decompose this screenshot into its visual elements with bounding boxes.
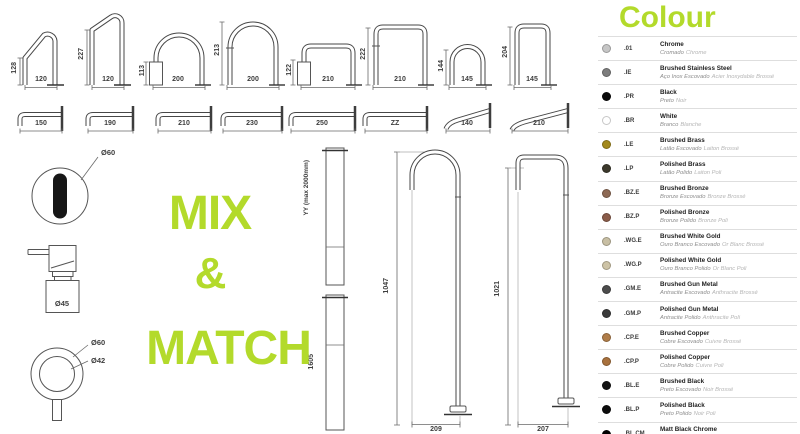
colour-name-fr: Cuivre Poli <box>696 363 724 369</box>
colour-row-polished-bronze: .BZ.P Polished Bronze Bronze PolidoBronz… <box>598 205 797 229</box>
dim-height-spout1: 128 <box>11 62 18 74</box>
colour-name-pt: Ouro Branco Polido <box>660 266 711 272</box>
colour-row-polished-brass: .LP Polished Brass Latão PolidoLaiton Po… <box>598 156 797 180</box>
dim-dispenser-diameter: Ø45 <box>55 300 69 308</box>
dim-floor-spout1-height: 1047 <box>383 278 390 294</box>
colour-swatch <box>602 68 611 77</box>
colour-code: .BZ.P <box>624 214 639 220</box>
dim-handle-outer-diameter: Ø60 <box>91 339 105 347</box>
colour-name-fr: Noir <box>676 98 687 104</box>
colour-name: Polished White Gold <box>660 257 721 264</box>
colour-swatch <box>602 381 611 390</box>
colour-swatch <box>602 189 611 198</box>
colour-code: .CP.E <box>624 335 639 341</box>
catalog-page: 128 120 227 120 113 200 213 200 122 210 … <box>0 0 800 434</box>
colour-legend-title: Colour <box>619 1 716 35</box>
colour-name: Matt Black Chrome <box>660 426 717 433</box>
colour-swatch <box>602 44 611 53</box>
colour-swatch <box>602 405 611 414</box>
floor-spout-angled-drawing <box>505 157 580 428</box>
colour-code: .IE <box>624 70 631 76</box>
colour-row-polished-gun-metal: .GM.P Polished Gun Metal Antracite Polid… <box>598 301 797 325</box>
colour-name: White <box>660 113 677 120</box>
dim-wall-spout4: 230 <box>246 120 258 127</box>
colour-name: Brushed Brass <box>660 137 705 144</box>
colour-code: .WG.E <box>624 238 642 244</box>
colour-row-brushed-white-gold: .WG.E Brushed White Gold Ouro Branco Esc… <box>598 229 797 253</box>
colour-row-polished-black: .BL.P Polished Black Preto PolidoNoir Po… <box>598 397 797 421</box>
dim-height-spout2: 227 <box>78 48 85 60</box>
colour-name: Brushed Black <box>660 378 704 385</box>
colour-legend: .01 Chrome CromadoChrome .IE Brushed Sta… <box>598 36 797 434</box>
dim-sensor-diameter: Ø60 <box>101 149 115 157</box>
colour-row-polished-copper: .CP.P Polished Copper Cobre PolidoCuivre… <box>598 349 797 373</box>
top-spout-square-small-drawing <box>291 46 363 90</box>
colour-name-pt: Preto <box>660 98 674 104</box>
colour-name-fr: Or Blanc Poli <box>713 266 747 272</box>
colour-code: .01 <box>624 46 632 52</box>
colour-name-fr: Laiton Brossé <box>704 146 739 152</box>
colour-swatch <box>602 261 611 270</box>
dim-floor-spout2-height: 1021 <box>494 281 501 297</box>
colour-code: .GM.E <box>624 286 641 292</box>
colour-row-chrome: .01 Chrome CromadoChrome <box>598 36 797 60</box>
colour-name-pt: Preto Polido <box>660 411 692 417</box>
colour-name-fr: Bronze Brossé <box>707 194 745 200</box>
colour-name: Polished Black <box>660 402 705 409</box>
dim-width-spout3: 200 <box>172 76 184 83</box>
mix-match-line1: MIX <box>150 190 270 238</box>
dim-wall-spout3: 210 <box>178 120 190 127</box>
colour-row-brushed-gun-metal: .GM.E Brushed Gun Metal Antracite Escova… <box>598 277 797 301</box>
colour-name-pt: Branco <box>660 122 678 128</box>
soap-dispenser-drawing <box>28 246 79 313</box>
dim-height-spout8: 204 <box>502 46 509 58</box>
colour-name-fr: Chrome <box>686 50 707 56</box>
colour-swatch <box>602 430 611 434</box>
dim-height-spout7: 144 <box>438 60 445 72</box>
colour-name-pt: Latão Polido <box>660 170 692 176</box>
sensor-spout-top-view <box>32 157 98 224</box>
wall-spout-angled-140-drawing <box>446 103 490 134</box>
colour-name-fr: Laiton Poli <box>694 170 721 176</box>
colour-code: .BL.P <box>624 407 639 413</box>
dim-wall-spout8: 210 <box>533 120 545 127</box>
colour-name-pt: Preto Escovado <box>660 387 701 393</box>
colour-name: Polished Bronze <box>660 209 709 216</box>
colour-row-black: .PR Black PretoNoir <box>598 84 797 108</box>
colour-name-pt: Antracite Escovado <box>660 290 710 296</box>
colour-row-brushed-brass: .LE Brushed Brass Latão EscovadoLaiton B… <box>598 132 797 156</box>
dim-wall-spout6: ZZ <box>391 120 400 127</box>
colour-name: Brushed White Gold <box>660 233 721 240</box>
colour-row-brushed-stainless: .IE Brushed Stainless Steel Aço Inox Esc… <box>598 60 797 84</box>
dim-floor-spout2-base: 207 <box>537 426 549 433</box>
colour-code: .BZ.E <box>624 190 639 196</box>
dim-height-spout3: 113 <box>139 65 146 76</box>
dim-wall-spout1: 150 <box>35 120 47 127</box>
colour-swatch <box>602 213 611 222</box>
colour-name-pt: Cromado <box>660 50 684 56</box>
colour-name-fr: Noir Brossé <box>703 387 733 393</box>
colour-name-fr: Acier Inoxydable Brossé <box>712 74 775 80</box>
colour-code: .LP <box>624 166 633 172</box>
colour-row-brushed-bronze: .BZ.E Brushed Bronze Bronze EscovadoBron… <box>598 181 797 205</box>
dim-height-spout4: 213 <box>214 44 221 56</box>
dim-width-spout1: 120 <box>35 76 47 83</box>
colour-swatch <box>602 164 611 173</box>
colour-code: .WG.P <box>624 262 642 268</box>
colour-row-matt-black-chrome: .BL.CM Matt Black Chrome Preto Cromado M… <box>598 422 797 434</box>
dim-floor-spout1-base: 209 <box>430 426 442 433</box>
colour-name-pt: Aço Inox Escovado <box>660 74 710 80</box>
colour-code: .BL.E <box>624 383 639 389</box>
colour-name-pt: Cobre Polido <box>660 363 694 369</box>
dim-width-spout4: 200 <box>247 76 259 83</box>
dim-wall-spout2: 190 <box>104 120 116 127</box>
colour-name-fr: Anthracite Brossé <box>712 290 758 296</box>
dim-handle-inner-diameter: Ø42 <box>91 357 105 365</box>
colour-name: Polished Gun Metal <box>660 306 718 313</box>
dim-riser-adjustable: YY (max 2000mm) <box>304 160 311 216</box>
handle-top-view <box>31 345 88 421</box>
colour-name-fr: Or Blanc Brossé <box>722 242 764 248</box>
colour-code: .PR <box>624 94 634 100</box>
colour-name-pt: Latão Escovado <box>660 146 702 152</box>
colour-name-pt: Cobre Escovado <box>660 339 703 345</box>
colour-name-fr: Noir Poli <box>694 411 716 417</box>
colour-row-brushed-copper: .CP.E Brushed Copper Cobre EscovadoCuivr… <box>598 325 797 349</box>
floor-spout-arched-drawing <box>394 152 472 428</box>
colour-swatch <box>602 357 611 366</box>
colour-row-polished-white-gold: .WG.P Polished White Gold Ouro Branco Po… <box>598 253 797 277</box>
colour-swatch <box>602 309 611 318</box>
colour-name-pt: Bronze Polido <box>660 218 696 224</box>
colour-name-pt: Bronze Escovado <box>660 194 705 200</box>
dim-width-spout7: 145 <box>461 76 473 83</box>
colour-name: Brushed Bronze <box>660 185 709 192</box>
colour-name: Polished Copper <box>660 354 710 361</box>
colour-name: Polished Brass <box>660 161 706 168</box>
colour-name-fr: Blanche <box>680 122 701 128</box>
dim-height-spout6: 222 <box>360 48 367 60</box>
riser-fixed-drawing <box>322 295 348 430</box>
colour-name: Chrome <box>660 41 684 48</box>
colour-name: Black <box>660 89 677 96</box>
colour-name-fr: Cuivre Brossé <box>705 339 741 345</box>
dim-height-spout5: 122 <box>286 64 293 76</box>
colour-name-fr: Bronze Poli <box>698 218 728 224</box>
top-spout-round-compact-drawing <box>444 47 493 91</box>
colour-name: Brushed Stainless Steel <box>660 65 732 72</box>
colour-row-white: .BR White BrancoBlanche <box>598 108 797 132</box>
wall-spout-angled-210-drawing <box>512 103 568 134</box>
colour-swatch <box>602 285 611 294</box>
colour-name-fr: Anthracite Poli <box>703 315 740 321</box>
mix-match-line2: & <box>150 252 270 296</box>
dim-width-spout5: 210 <box>322 76 334 83</box>
dim-wall-spout7: 140 <box>461 120 473 127</box>
colour-code: .GM.P <box>624 311 641 317</box>
colour-name-pt: Ouro Branco Escovado <box>660 242 720 248</box>
dim-wall-spout5: 250 <box>316 120 328 127</box>
colour-swatch <box>602 92 611 101</box>
riser-adjustable-drawing <box>322 148 348 285</box>
colour-code: .CP.P <box>624 359 639 365</box>
colour-row-brushed-black: .BL.E Brushed Black Preto EscovadoNoir B… <box>598 373 797 397</box>
colour-name: Brushed Copper <box>660 330 709 337</box>
mix-match-line3: MATCH <box>136 325 321 373</box>
colour-name-pt: Antracite Polido <box>660 315 701 321</box>
colour-swatch <box>602 116 611 125</box>
colour-code: .LE <box>624 142 633 148</box>
colour-swatch <box>602 333 611 342</box>
colour-swatch <box>602 140 611 149</box>
colour-name: Brushed Gun Metal <box>660 281 718 288</box>
colour-swatch <box>602 237 611 246</box>
dim-width-spout8: 145 <box>526 76 538 83</box>
dim-width-spout2: 120 <box>102 76 114 83</box>
dim-width-spout6: 210 <box>394 76 406 83</box>
colour-code: .BR <box>624 118 634 124</box>
